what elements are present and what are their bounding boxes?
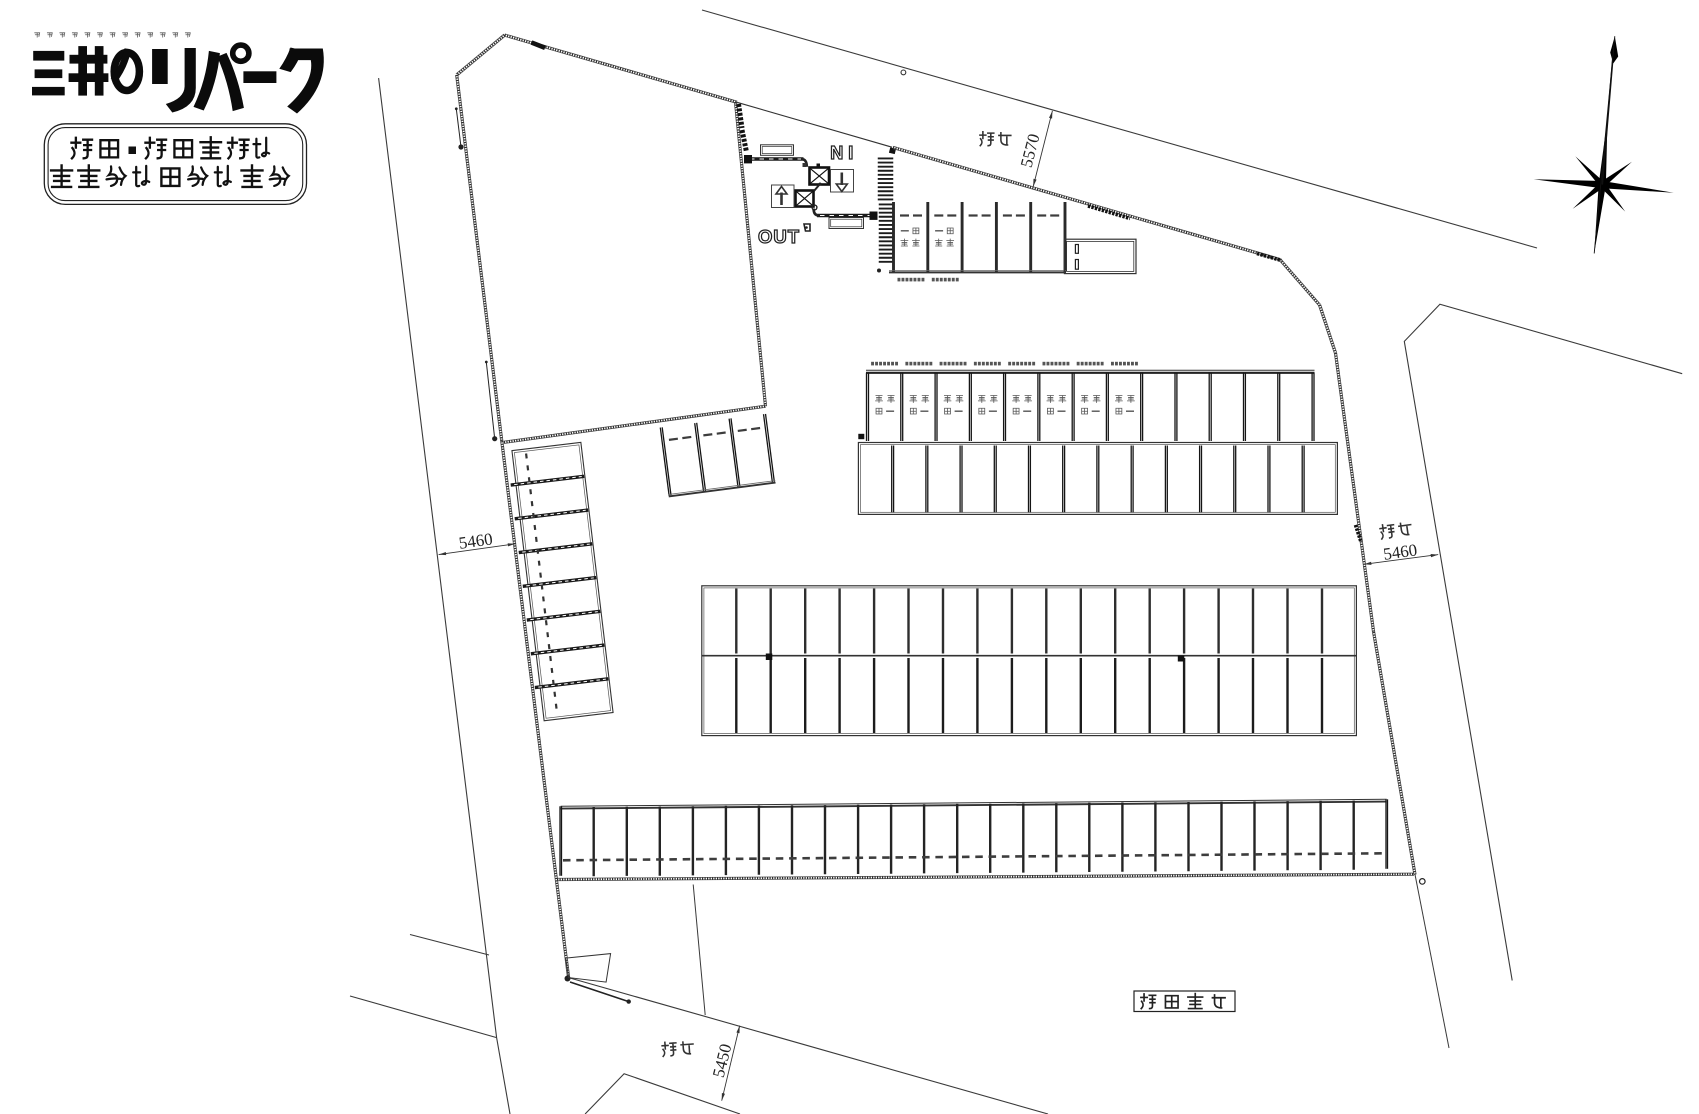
svg-text:OUT: OUT xyxy=(758,226,800,247)
svg-text:N I: N I xyxy=(830,143,853,163)
